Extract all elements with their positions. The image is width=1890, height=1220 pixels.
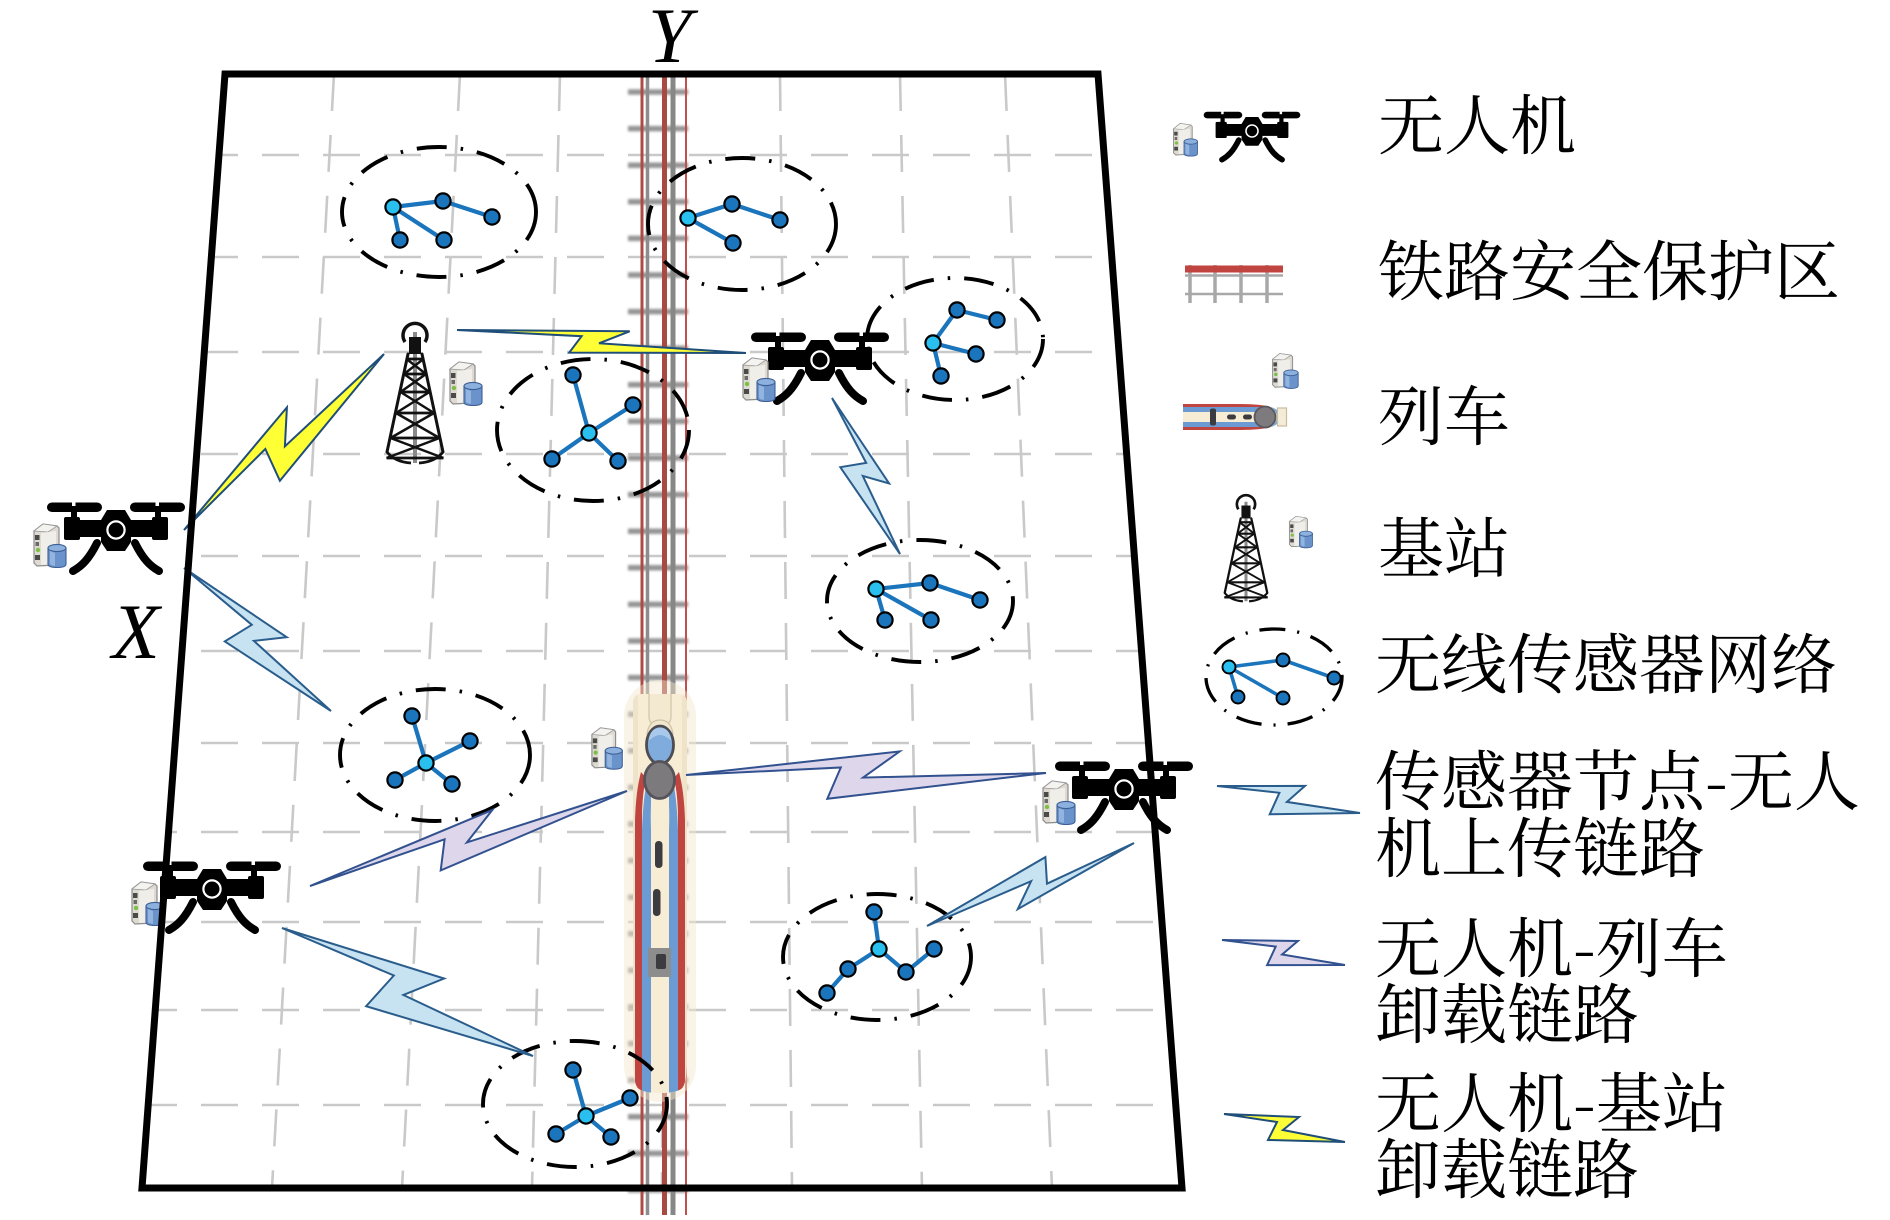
svg-text:Y: Y: [648, 0, 699, 79]
svg-text:X: X: [109, 588, 163, 675]
